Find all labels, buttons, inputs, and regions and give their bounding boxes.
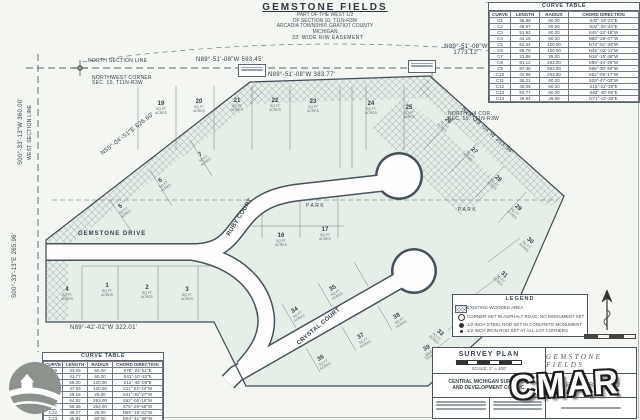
north-section-line-label: NORTH SECTION LINE	[88, 59, 147, 64]
lot-parcel: 2SQ FTACRES	[132, 286, 162, 298]
fine-print-cell	[433, 398, 490, 418]
curve-table-cell: C14	[490, 96, 511, 102]
scale-note: SCALE: 1" = 100'	[472, 366, 507, 371]
curve-table-cell: 25.00	[540, 96, 569, 102]
bearing-west-upper: S00°-33'-13"W 360.00'	[18, 98, 24, 165]
bearing-top-right-line2: 1773.12'	[453, 50, 478, 56]
cmar-watermark: CMAR	[509, 363, 621, 408]
west-section-line-label: WEST SECTION LINE	[28, 104, 33, 160]
graphic-scale-bar	[584, 334, 636, 339]
lot-parcel: 22SQ FTACRES	[260, 99, 290, 111]
curve-table-top-right: CURVE TABLE CURVE LENGTH RADIUS CHORD DI…	[488, 2, 640, 103]
lot-parcel: 25SQ FTACRES	[394, 106, 424, 118]
crystal-court-culdesac	[394, 251, 435, 292]
nw-corner-line2: SEC. 10, T11N-R3W	[92, 80, 143, 86]
realtor-logo-watermark	[8, 360, 64, 416]
ruby-court-culdesac	[378, 155, 421, 198]
legend-item: 1/2 INCH STEEL ROD SET IN CONCRETE MONUM…	[455, 323, 585, 328]
lot-parcel: 23SQ FTACRES	[298, 100, 328, 112]
north-arrow	[602, 290, 612, 330]
curve-col-header: LENGTH	[63, 362, 88, 368]
filled-circle-icon	[459, 323, 464, 328]
hatch-swatch-icon	[455, 305, 467, 313]
curve-col-header: CURVE	[490, 12, 511, 18]
lot-parcel: 24SQ FTACRES	[356, 102, 386, 114]
monument-note-box	[238, 64, 266, 77]
lot-parcel: 16SQ FTACRES	[266, 234, 296, 246]
legend-title: LEGEND	[455, 296, 585, 303]
curve-col-header: CHORD DIRECTION	[113, 362, 163, 368]
park-label-west: PARK	[306, 204, 325, 209]
park-label-east: PARK	[458, 208, 477, 213]
curve-table-cell: N71°-13'-28"E	[569, 96, 639, 102]
legend-item-label: CORNER SET IN ASPHALT ROAD, NO MONUMENT …	[467, 315, 584, 320]
bearing-top-left: N89°-51'-08"W 593.45'	[196, 57, 263, 63]
curve-table-title: CURVE TABLE	[489, 3, 639, 11]
lot-parcel: 4SQ FTACRES	[52, 288, 82, 300]
fine-print-cell	[561, 407, 621, 409]
scale-bar-icon	[456, 360, 522, 365]
easement-note: 33' WIDE R/W EASEMENT	[292, 36, 363, 41]
lot-parcel: 19SQ FTACRES	[146, 102, 176, 114]
open-circle-icon	[458, 314, 465, 321]
curve-table-cell: C23	[44, 416, 63, 420]
survey-plat-scan: GEMSTONE FIELDS PART OF THE WEST 1/2 OF …	[0, 0, 640, 420]
lot-parcel: 17SQ FTACRES	[310, 228, 340, 240]
legend-item: 1/2 INCH IRON ROD SET AT ALL LOT CORNERS	[455, 329, 585, 334]
legend-item-label: 1/2 INCH STEEL ROD SET IN CONCRETE MONUM…	[467, 323, 582, 328]
curve-table-cell: N24°-41'-36"W	[113, 416, 163, 420]
curve-table-row: C1428.9425.00N71°-13'-28"E	[490, 96, 639, 102]
legend-item-label: 1/2 INCH IRON ROD SET AT ALL LOT CORNERS	[467, 329, 568, 334]
legend-box: LEGEND EXISTING WOODED AREA CORNER SET I…	[452, 294, 588, 337]
curve-table-cell: 28.94	[511, 96, 540, 102]
legend-item-label: EXISTING WOODED AREA	[467, 306, 523, 311]
bearing-south: N89°-42'-02"W 322.01'	[70, 325, 137, 331]
legend-item: CORNER SET IN ASPHALT ROAD, NO MONUMENT …	[455, 314, 585, 321]
street-gemstone-drive: GEMSTONE DRIVE	[78, 231, 146, 237]
lot-parcel: 20SQ FTACRES	[184, 100, 214, 112]
survey-plan-label: SURVEY PLAN	[459, 351, 520, 359]
lot-parcel: 1SQ FTACRES	[92, 284, 122, 296]
bearing-top-center: N89°-51'-08"W 383.77'	[268, 72, 335, 78]
monument-note-box	[408, 60, 436, 73]
curve-table-cell: 45.81	[63, 416, 88, 420]
plat-heading: GEMSTONE FIELDS PART OF THE WEST 1/2 OF …	[190, 2, 460, 35]
lot-parcel: 3SQ FTACRES	[172, 288, 202, 300]
curve-table-cell: 60.00	[88, 416, 113, 420]
nw-corner-label: NORTHWEST CORNER SEC. 10, T11N-R3W	[92, 76, 152, 86]
dot-icon	[460, 330, 463, 333]
bearing-west-lower: S00°-33'-13"E 265.96'	[12, 233, 18, 298]
legend-item: EXISTING WOODED AREA	[455, 305, 585, 313]
curve-table-row: C2345.8160.00N24°-41'-36"W	[44, 416, 163, 420]
lot-parcel: 21SQ FTACRES	[222, 99, 252, 111]
